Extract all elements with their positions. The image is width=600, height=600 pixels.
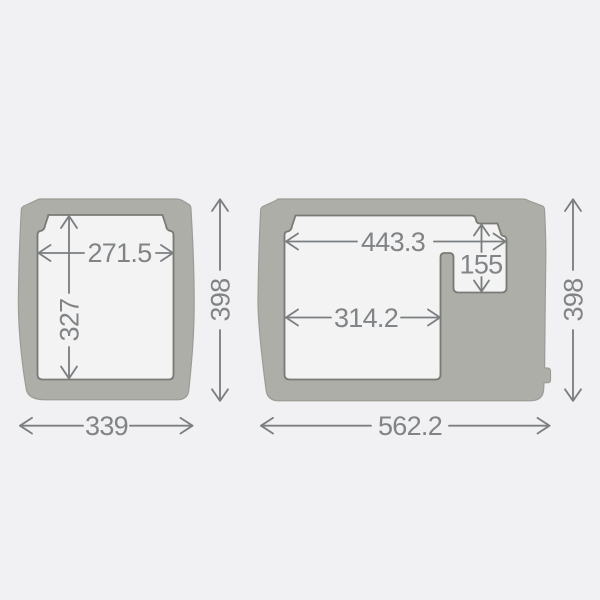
- svg-text:398: 398: [559, 279, 589, 322]
- svg-text:155: 155: [460, 250, 503, 280]
- svg-text:271.5: 271.5: [87, 238, 151, 268]
- svg-text:562.2: 562.2: [378, 411, 442, 441]
- svg-text:339: 339: [85, 411, 128, 441]
- svg-text:314.2: 314.2: [334, 303, 398, 333]
- svg-text:327: 327: [55, 299, 85, 342]
- svg-text:398: 398: [206, 279, 236, 322]
- svg-text:443.3: 443.3: [361, 227, 425, 257]
